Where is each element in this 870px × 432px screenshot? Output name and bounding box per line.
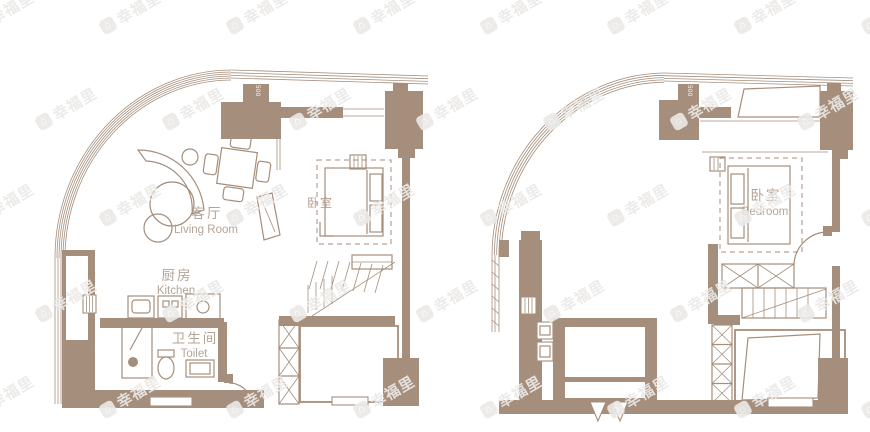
round-rug-small bbox=[144, 214, 172, 242]
window-hatch bbox=[521, 297, 536, 314]
toilet-fixture bbox=[158, 350, 174, 379]
bedroom-door bbox=[794, 226, 832, 266]
floorplan-image: 客厅 Living Room 厨房 Kitchen 卫生间 Toilet 卧室 … bbox=[0, 0, 870, 432]
side-table bbox=[182, 149, 198, 165]
left-hatched-wall bbox=[492, 255, 499, 332]
closet-grid bbox=[350, 155, 366, 169]
tv-panel bbox=[257, 193, 280, 240]
living-room-label-en: Living Room bbox=[174, 224, 238, 236]
kitchen-sink bbox=[132, 300, 150, 313]
living-room-label-zh: 客厅 bbox=[192, 205, 223, 221]
bedroom-upper-label-zh: 卧室 bbox=[751, 187, 782, 203]
top-cabinet bbox=[738, 86, 820, 117]
pillow bbox=[370, 174, 382, 201]
bedroom-lower-label-zh: 卧室 bbox=[307, 195, 333, 210]
toilet-label-en: Toilet bbox=[181, 348, 209, 360]
curved-outer-wall bbox=[492, 73, 664, 255]
bedroom-upper bbox=[710, 157, 802, 252]
wall-blocks bbox=[62, 83, 423, 408]
cabinet bbox=[352, 255, 392, 269]
floorplan-lower-level: 客厅 Living Room 厨房 Kitchen 卫生间 Toilet 卧室 … bbox=[55, 70, 428, 408]
shaft-xhatch-lower bbox=[279, 320, 299, 404]
door-width-label: 1500 bbox=[686, 81, 692, 97]
staircase-upper bbox=[742, 288, 826, 318]
dining-table-set bbox=[200, 131, 275, 206]
floorplan-drawing: 客厅 Living Room 厨房 Kitchen 卫生间 Toilet 卧室 … bbox=[0, 0, 870, 432]
shaft-xhatch-upper bbox=[712, 325, 732, 403]
shower-head bbox=[128, 357, 138, 367]
bed bbox=[728, 166, 790, 244]
kitchen-label-en: Kitchen bbox=[157, 285, 195, 297]
bathroom-sink bbox=[186, 360, 214, 377]
bedroom-upper-label-en: Bedroom bbox=[742, 206, 789, 218]
corner-wall bbox=[320, 222, 334, 236]
wardrobe-xhatch bbox=[722, 264, 794, 288]
shower bbox=[122, 326, 152, 378]
stove-burner bbox=[172, 301, 178, 307]
kitchen-label-zh: 厨房 bbox=[162, 268, 193, 283]
nightstand bbox=[710, 157, 725, 171]
kitchen-counters bbox=[128, 294, 220, 320]
pillow bbox=[731, 174, 744, 204]
meter-boxes bbox=[537, 322, 553, 361]
wall-blocks bbox=[499, 83, 853, 414]
bedroom-lower bbox=[317, 155, 392, 269]
door-width-label: 1500 bbox=[254, 81, 260, 97]
window-hatch bbox=[83, 295, 96, 313]
round-rug bbox=[150, 182, 194, 226]
pillow bbox=[370, 205, 382, 232]
bed bbox=[325, 168, 383, 236]
floorplan-upper-level: 卧室 Bedroom 1500 bbox=[492, 73, 853, 421]
stove-burner bbox=[163, 301, 169, 307]
toilet-label-zh: 卫生间 bbox=[172, 331, 219, 346]
